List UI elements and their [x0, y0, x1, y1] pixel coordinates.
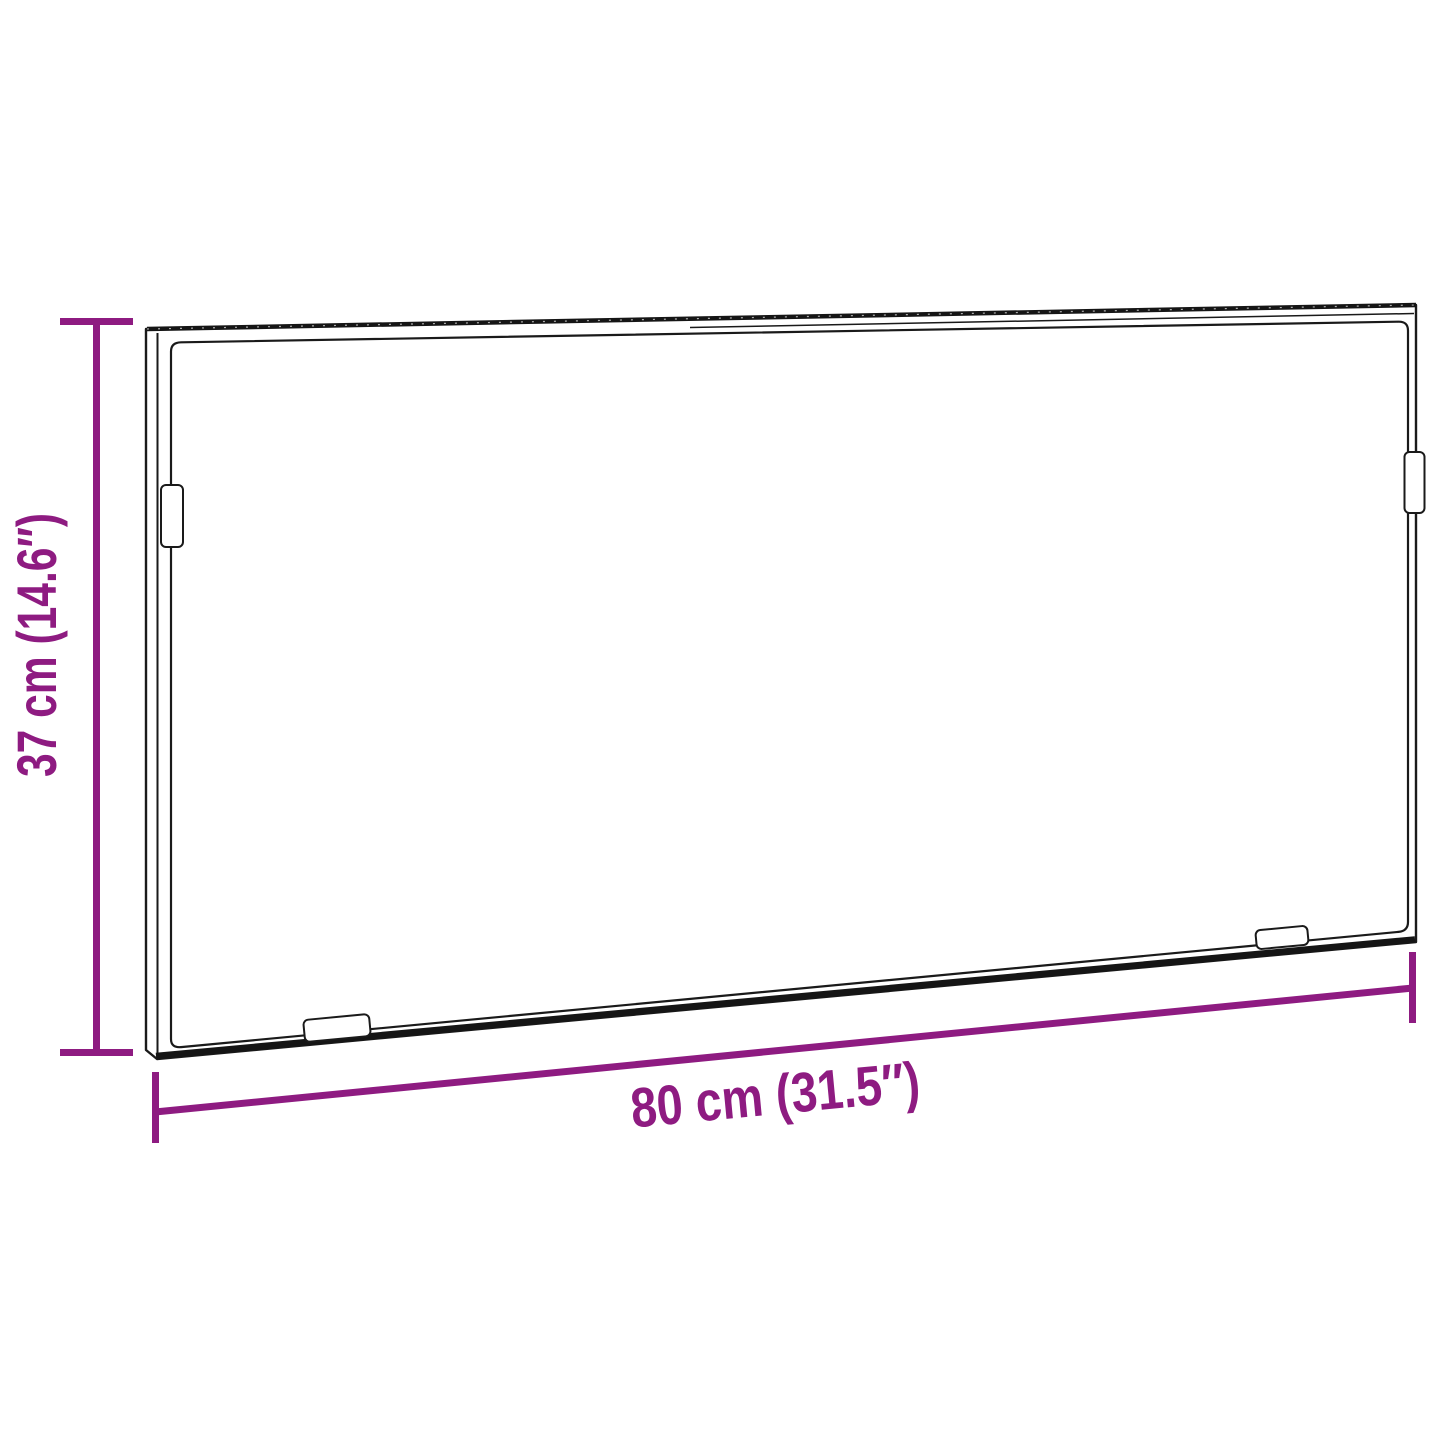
mounting-bracket-left	[161, 485, 183, 547]
dimension-diagram: 37 cm (14.6″) 80 cm (31.5″)	[0, 0, 1445, 1445]
diagram-canvas: 37 cm (14.6″) 80 cm (31.5″)	[0, 0, 1445, 1445]
height-dimension-label: 37 cm (14.6″)	[5, 513, 68, 777]
mirror-face	[171, 322, 1408, 1047]
panel-drawing	[146, 305, 1425, 1059]
mounting-bracket-bottom-right	[1255, 926, 1309, 950]
mounting-bracket-right	[1405, 452, 1425, 513]
height-dimension	[60, 321, 133, 1053]
